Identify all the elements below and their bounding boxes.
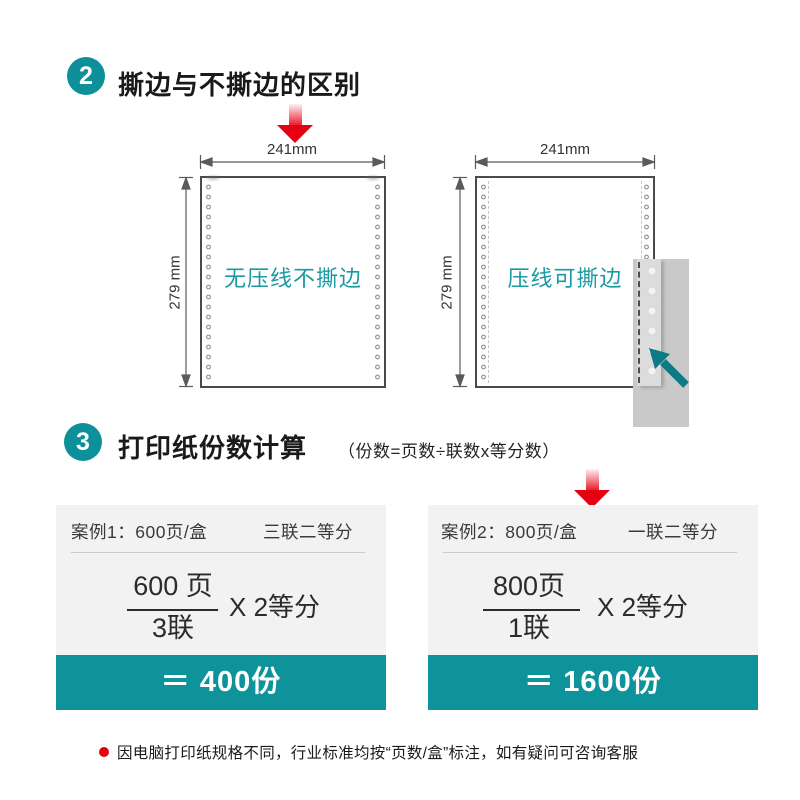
section-3-formula: （份数=页数÷联数x等分数） bbox=[338, 437, 560, 462]
right-paper-width-dimension-line bbox=[474, 154, 656, 170]
section-3-title: 打印纸份数计算 bbox=[118, 428, 307, 465]
case-2-multiplier: X 2等分 bbox=[597, 592, 688, 622]
tear-direction-arrow-icon bbox=[645, 345, 691, 391]
case-1-fraction-bar bbox=[127, 609, 218, 611]
section-3-badge: 3 bbox=[64, 423, 102, 461]
case-1-divider bbox=[71, 552, 365, 553]
case-1-multiplier: X 2等分 bbox=[229, 592, 320, 622]
case-1-result: ＝ 400份 bbox=[56, 655, 386, 710]
section-2-badge: 2 bbox=[67, 57, 105, 95]
down-arrow-stem bbox=[289, 104, 302, 125]
case-1-numerator: 600 页 bbox=[112, 571, 234, 601]
left-paper-caption: 无压线不撕边 bbox=[202, 261, 384, 293]
tear-edge-magnified-strip bbox=[633, 259, 689, 427]
section-2-title: 撕边与不撕边的区别 bbox=[118, 65, 361, 102]
paper-tear-edge: 压线可撕边 bbox=[475, 176, 655, 388]
case-2-spec: 案例2：800页/盒 bbox=[441, 519, 577, 544]
case-2-fraction-bar bbox=[483, 609, 580, 611]
left-paper-height-dimension-line bbox=[178, 176, 194, 388]
case-1-layout: 三联二等分 bbox=[263, 519, 353, 544]
paper-corner-shade bbox=[204, 174, 222, 182]
note-bullet-icon bbox=[99, 747, 109, 757]
case-2-divider bbox=[443, 552, 737, 553]
right-paper-height-dimension-line bbox=[452, 176, 468, 388]
paper-corner-shade bbox=[364, 174, 382, 182]
case-1-denominator: 3联 bbox=[112, 613, 234, 643]
section-2-number: 2 bbox=[79, 62, 93, 90]
case-2-result: ＝ 1600份 bbox=[428, 655, 758, 710]
case-2-denominator: 1联 bbox=[468, 613, 590, 643]
right-paper-caption: 压线可撕边 bbox=[477, 261, 653, 293]
footnote-text: 因电脑打印纸规格不同，行业标准均按“页数/盒”标注，如有疑问可咨询客服 bbox=[117, 741, 638, 763]
down-arrow-icon bbox=[277, 104, 313, 143]
left-paper-width-dimension-line bbox=[199, 154, 386, 170]
section-3-number: 3 bbox=[76, 428, 90, 456]
down-arrow-stem bbox=[586, 469, 599, 490]
case-2-numerator: 800页 bbox=[468, 571, 590, 601]
case-1-spec: 案例1：600页/盒 bbox=[71, 519, 207, 544]
down-arrow-icon bbox=[574, 469, 610, 508]
paper-no-tear-edge: 无压线不撕边 bbox=[200, 176, 386, 388]
tear-perforation-dashed-line bbox=[638, 262, 640, 383]
printer-paper-infographic: 2 撕边与不撕边的区别 241mm 279 mm 无压线不撕边 bbox=[0, 0, 800, 800]
case-2-layout: 一联二等分 bbox=[628, 519, 718, 544]
